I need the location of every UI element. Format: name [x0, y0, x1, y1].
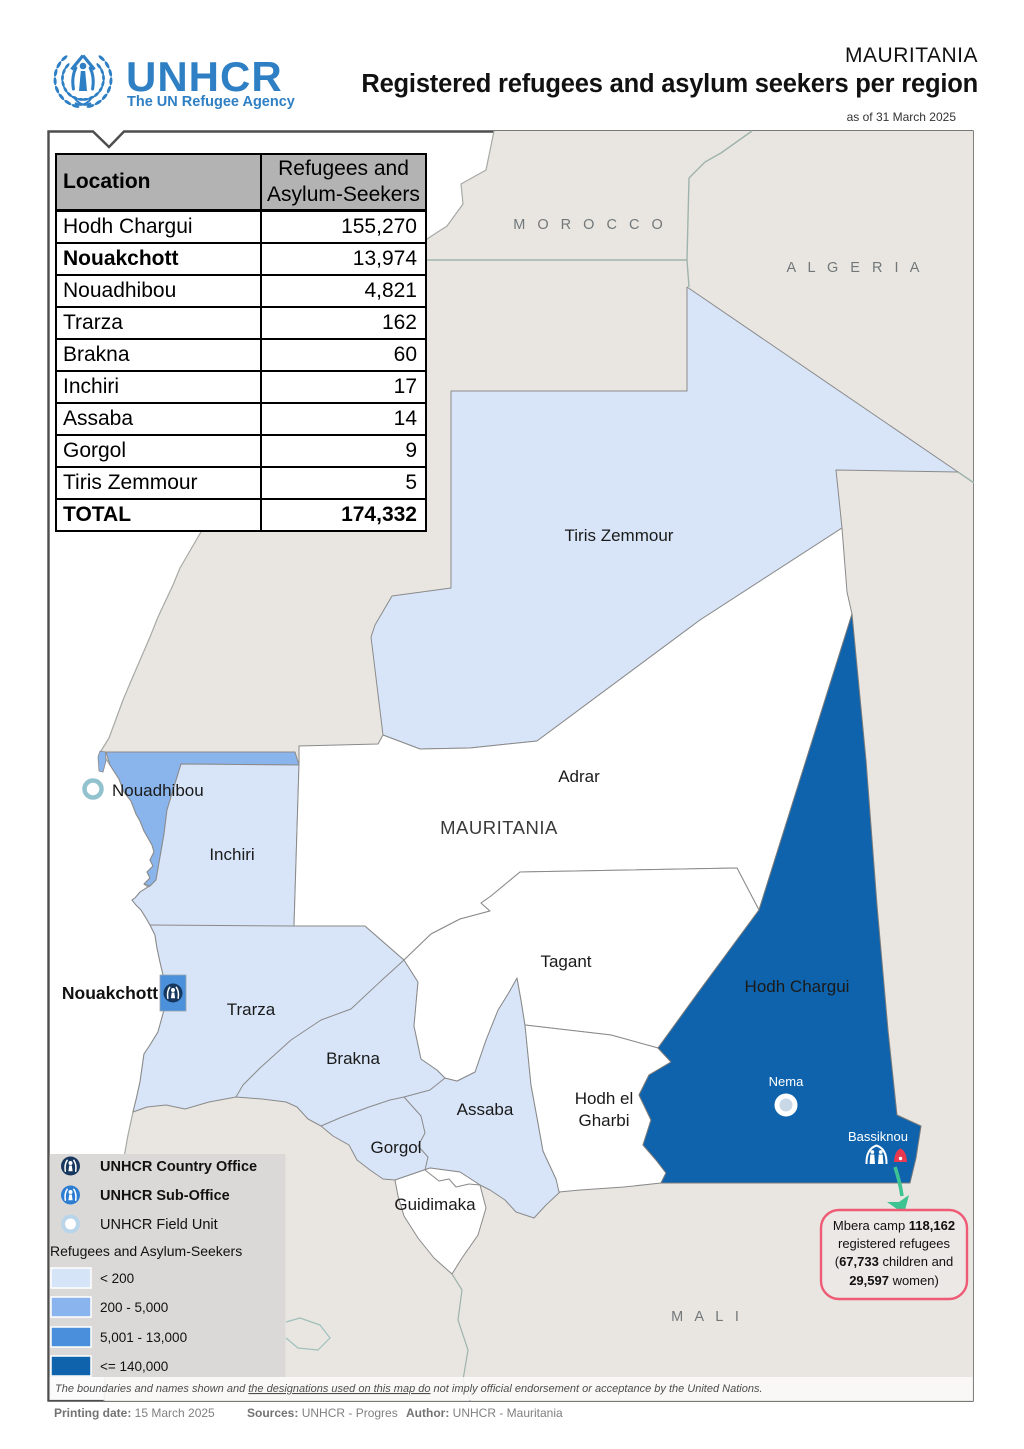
svg-text:Adrar: Adrar	[558, 767, 600, 786]
svg-text:Tagant: Tagant	[540, 952, 591, 971]
svg-text:UNHCR Sub-Office: UNHCR Sub-Office	[100, 1188, 230, 1204]
svg-text:The boundaries and names shown: The boundaries and names shown and the d…	[55, 1383, 763, 1395]
svg-text:29,597 women): 29,597 women)	[849, 1273, 939, 1288]
svg-text:Mbera camp 118,162: Mbera camp 118,162	[833, 1218, 955, 1233]
svg-text:Trarza: Trarza	[227, 1000, 276, 1019]
svg-text:Hodh el: Hodh el	[575, 1089, 634, 1108]
svg-text:Gharbi: Gharbi	[578, 1111, 629, 1130]
svg-text:M O R O C C O: M O R O C C O	[513, 217, 667, 233]
svg-text:Nouadhibou: Nouadhibou	[112, 781, 204, 800]
svg-text:< 200: < 200	[100, 1271, 134, 1286]
svg-text:Guidimaka: Guidimaka	[394, 1195, 476, 1214]
svg-text:registered refugees: registered refugees	[838, 1236, 951, 1251]
svg-text:Tiris Zemmour: Tiris Zemmour	[565, 526, 674, 545]
svg-text:<= 140,000: <= 140,000	[100, 1359, 168, 1374]
svg-text:200 - 5,000: 200 - 5,000	[100, 1300, 168, 1315]
svg-text:Brakna: Brakna	[326, 1049, 380, 1068]
svg-text:UNHCR Country Office: UNHCR Country Office	[100, 1159, 257, 1175]
svg-text:5,001 - 13,000: 5,001 - 13,000	[100, 1330, 187, 1345]
svg-text:Gorgol: Gorgol	[370, 1138, 421, 1157]
svg-text:M A L I: M A L I	[671, 1309, 743, 1325]
svg-text:Inchiri: Inchiri	[209, 845, 254, 864]
svg-text:Nema: Nema	[769, 1074, 804, 1089]
svg-text:Nouakchott: Nouakchott	[62, 983, 158, 1003]
svg-text:UNHCR Field Unit: UNHCR Field Unit	[100, 1217, 218, 1233]
svg-text:Bassiknou: Bassiknou	[848, 1129, 908, 1144]
svg-text:A L G E R I A: A L G E R I A	[787, 260, 924, 276]
svg-text:Hodh Chargui: Hodh Chargui	[745, 977, 850, 996]
svg-text:MAURITANIA: MAURITANIA	[440, 817, 558, 838]
svg-text:Assaba: Assaba	[457, 1100, 514, 1119]
svg-text:(67,733 children and: (67,733 children and	[835, 1254, 954, 1269]
svg-text:Refugees and Asylum-Seekers: Refugees and Asylum-Seekers	[50, 1243, 242, 1259]
